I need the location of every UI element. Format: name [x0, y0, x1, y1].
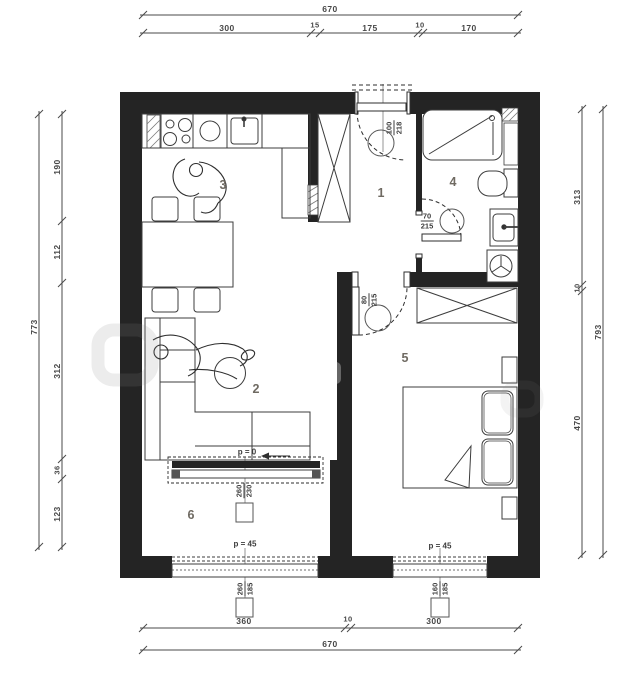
- bath-door-size: 70 215: [421, 212, 434, 231]
- sill-label-balcony-door: p = 0: [238, 448, 256, 457]
- dim-top-total: 670: [322, 4, 337, 14]
- entry-door: [352, 85, 413, 160]
- dim-top-seg-2: 175: [362, 23, 377, 33]
- dim-bottom-seg-2: 300: [426, 616, 441, 626]
- coffee-table: [215, 358, 246, 389]
- dim-right-seg-0: 313: [572, 189, 582, 204]
- person-figure-sofa: [153, 335, 256, 379]
- balcony-window-size: 260 185: [236, 582, 255, 597]
- chair: [194, 197, 220, 221]
- living-furniture: [145, 318, 310, 460]
- room-number-kitchen: 3: [220, 178, 227, 192]
- bedroom-door-size: 80 215: [360, 294, 379, 307]
- dim-left-seg-3: 36: [53, 465, 62, 474]
- bedroom-furniture: [403, 288, 517, 519]
- pillow: [482, 439, 513, 485]
- bedroom-window-size: 160 185: [431, 582, 450, 597]
- dim-bottom-seg-0: 360: [236, 616, 251, 626]
- dim-top-seg-4: 170: [461, 23, 476, 33]
- floor-plan-page: 670 300 15 175 10 170 773 190 112 312 36…: [0, 0, 637, 673]
- dim-left-seg-0: 190: [52, 159, 62, 174]
- sill-label-balcony-window: p = 45: [234, 540, 257, 549]
- dim-left-seg-1: 112: [52, 245, 62, 260]
- sofa: [145, 318, 310, 460]
- balcony-sliding-door: [168, 453, 323, 484]
- dim-bottom-total: 670: [322, 639, 337, 649]
- slide-arrow: [261, 453, 269, 460]
- dim-left-total: 773: [29, 319, 39, 334]
- dim-left-seg-4: 123: [52, 506, 62, 521]
- kitchen-fixtures: [142, 114, 310, 312]
- dim-top-seg-1: 15: [310, 21, 319, 30]
- nightstand: [502, 497, 517, 519]
- nightstand: [502, 357, 517, 383]
- chair: [152, 197, 178, 221]
- dim-left-seg-2: 312: [52, 363, 62, 378]
- dining-table: [142, 222, 233, 287]
- dim-right-seg-2: 470: [572, 415, 582, 430]
- room-number-hall: 1: [378, 186, 385, 200]
- room-number-balcony: 6: [188, 508, 195, 522]
- entry-porch-dashes: [352, 85, 413, 90]
- dim-right-total: 793: [593, 324, 603, 339]
- dim-top-seg-3: 10: [415, 21, 424, 30]
- dim-top-seg-0: 300: [219, 23, 234, 33]
- chair: [194, 288, 220, 312]
- entry-door-size: 100 218: [385, 121, 404, 136]
- hall-closet: [318, 114, 350, 222]
- chair: [152, 288, 178, 312]
- toilet-bowl: [478, 171, 507, 196]
- sill-label-bedroom-window: p = 45: [429, 542, 452, 551]
- balcony-door-size: 260 230: [235, 484, 254, 499]
- room-number-living: 2: [253, 382, 260, 396]
- room-number-bath: 4: [450, 175, 457, 189]
- person-figure-kitchen: [173, 159, 226, 213]
- dim-bottom-seg-1: 10: [343, 615, 352, 624]
- floor-plan-drawing: [0, 0, 637, 673]
- dim-right-seg-1: 10: [573, 283, 582, 292]
- room-number-bedroom: 5: [402, 351, 409, 365]
